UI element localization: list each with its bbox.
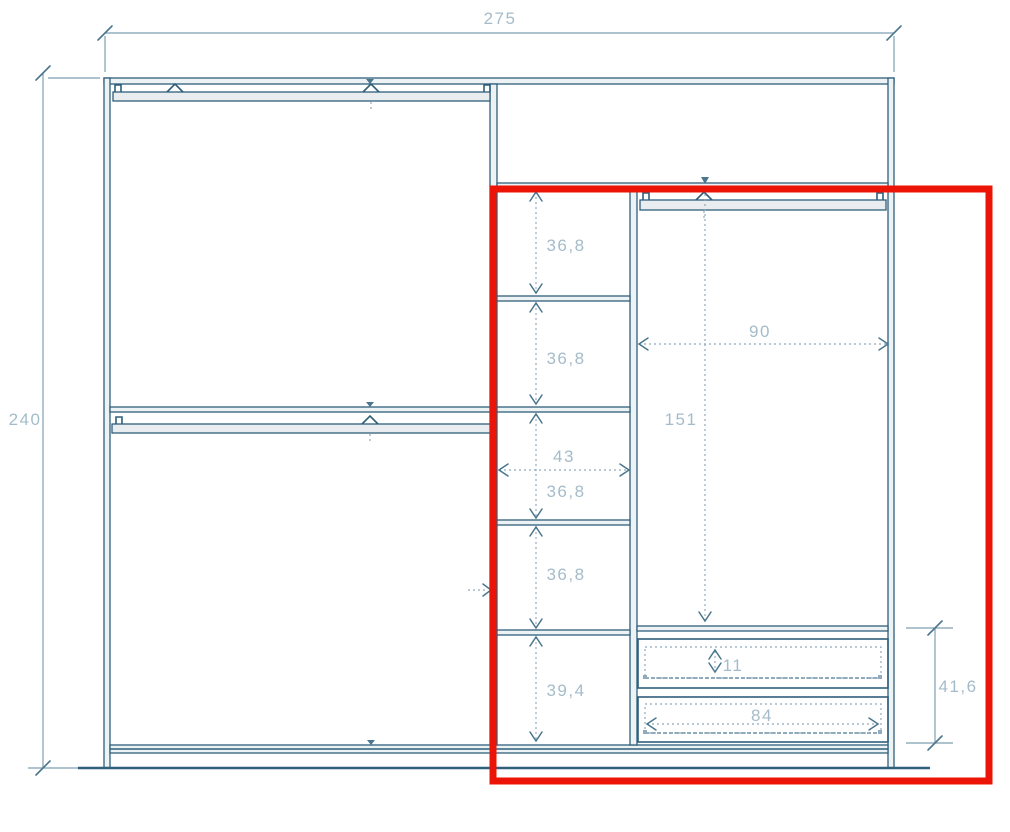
- drawer-front-width-label: 84: [751, 706, 773, 725]
- rail-bar: [113, 92, 490, 101]
- overall-width-label: 275: [484, 9, 517, 28]
- column-divider: [630, 187, 637, 745]
- drawer-unit-height-label: 41,6: [938, 677, 977, 696]
- runner-dot: [643, 675, 647, 679]
- shelf-column-width-label: 43: [553, 447, 575, 466]
- drawer-front: [638, 639, 888, 688]
- cabinet-frame: [78, 78, 930, 768]
- left-mid-shelf: [110, 407, 490, 412]
- drawer-front-height-label: 11: [723, 656, 744, 675]
- column-shelf-3: [497, 520, 630, 525]
- drawer-1: [638, 639, 888, 688]
- runner-dot: [643, 730, 647, 734]
- top-panel: [104, 78, 894, 84]
- drawer-unit: [638, 639, 888, 742]
- bottom-compartment-label: 39,4: [546, 681, 585, 700]
- rail-bracket: [484, 85, 490, 92]
- right-hanging-rail: [640, 192, 886, 220]
- bottom-panel-marker: [367, 740, 375, 745]
- shelf-above-drawers: [637, 626, 888, 631]
- dim-shelf-column-width: 43: [499, 447, 629, 476]
- dim-overall-width: 275: [98, 9, 901, 72]
- hanging-section-width-label: 90: [749, 322, 771, 341]
- rail-bracket: [116, 417, 122, 424]
- rail-support: [362, 416, 378, 424]
- left-top-hanging-rail: [113, 84, 490, 112]
- rail-bracket: [877, 193, 883, 200]
- dim-shelf-gaps: 36,8 36,8 36,8 36,8 39,4: [530, 192, 586, 741]
- dim-hanging-section-height: 151: [665, 177, 711, 621]
- rail-bracket: [115, 85, 121, 92]
- dim-drawer-front-width: 84: [647, 706, 878, 730]
- rail-bracket: [643, 193, 649, 200]
- rail-bar: [112, 424, 490, 433]
- shelf-gap-4-label: 36,8: [546, 565, 585, 584]
- left-wall: [104, 78, 110, 768]
- runner-dot: [878, 730, 882, 734]
- runner-dot: [878, 675, 882, 679]
- column-shelf-4: [497, 630, 630, 635]
- right-wall: [888, 78, 894, 768]
- rail-support: [696, 192, 712, 200]
- wardrobe-technical-drawing: 275 240 36,8 36,8 36,8 36,8 39,4: [0, 0, 1010, 832]
- dim-overall-height: 240: [9, 66, 100, 775]
- partition-pointer: [468, 584, 491, 596]
- dim-hanging-section-width: 90: [639, 322, 888, 350]
- hanging-section-height-label: 151: [665, 410, 698, 429]
- rail-support: [167, 84, 183, 92]
- column-shelf-2: [497, 407, 630, 412]
- drawer-inner-outline: [645, 647, 881, 678]
- shelf-gap-3-label: 36,8: [546, 482, 585, 501]
- shelf-gap-2-label: 36,8: [546, 349, 585, 368]
- dim-drawer-unit-height: 41,6: [906, 621, 978, 750]
- rail-support: [363, 84, 379, 92]
- column-shelf-1: [497, 296, 630, 301]
- drawing-canvas: 275 240 36,8 36,8 36,8 36,8 39,4: [0, 0, 1010, 832]
- shelf-gap-1-label: 36,8: [546, 236, 585, 255]
- rail-bar: [640, 200, 886, 210]
- dim-drawer-front-height: 11: [709, 650, 743, 675]
- shelf-marker: [366, 402, 374, 407]
- overall-height-label: 240: [9, 410, 42, 429]
